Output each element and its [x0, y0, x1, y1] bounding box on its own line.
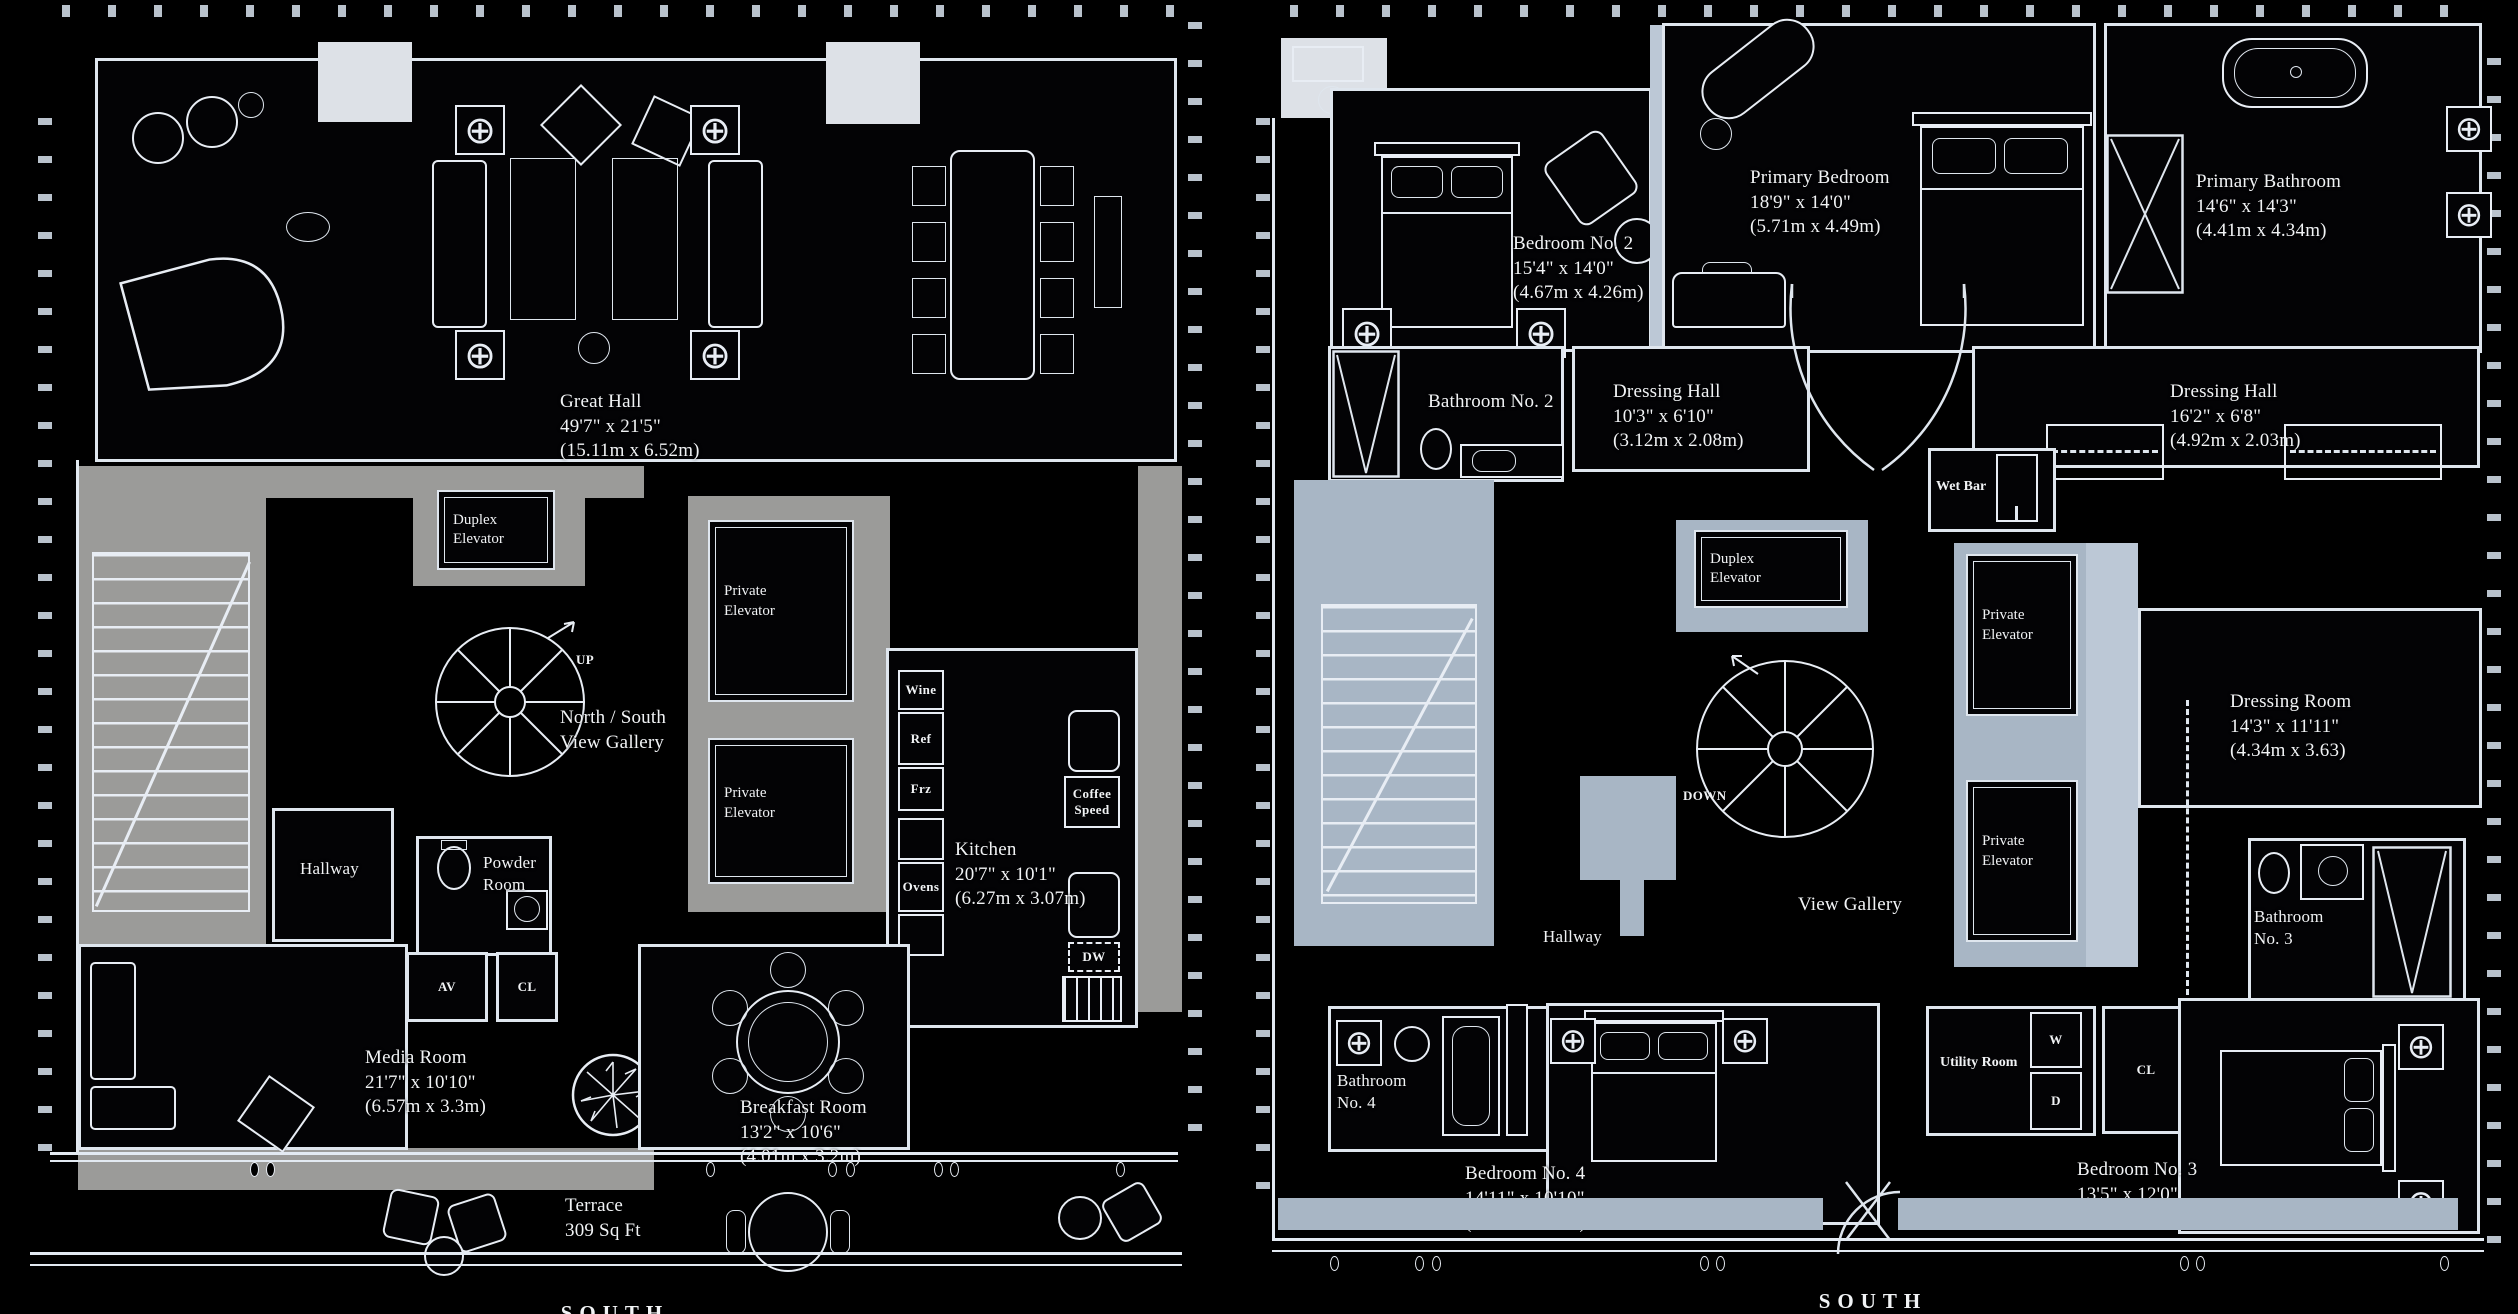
utility-room-label: Utility Room — [1940, 1054, 2017, 1072]
door-hinge-icon — [1432, 1256, 1441, 1271]
door-hinge-icon — [1716, 1256, 1725, 1271]
view-gallery-label: View Gallery — [1798, 893, 1902, 918]
door-hin​ge-icon — [2440, 1256, 2449, 1271]
shower-icon — [2106, 134, 2184, 294]
room-dim-imperial: 14'3" x 11'11" — [2230, 715, 2351, 740]
bathroom-4-label: Bathroom No. 4 — [1337, 1070, 1432, 1114]
door-hinge-icon — [2196, 1256, 2205, 1271]
sink-icon: ⊕ — [2446, 106, 2492, 152]
pillow-icon — [1391, 166, 1443, 198]
bed-headboard-icon — [1912, 112, 2092, 126]
pillow-icon — [1451, 166, 1503, 198]
dressing-hall-small-label: Dressing Hall 10'3" x 6'10" (3.12m x 2.0… — [1613, 380, 1744, 454]
room-dim-metric: (3.12m x 2.08m) — [1613, 429, 1744, 454]
south-wall-inner — [1272, 1250, 2484, 1252]
door-hinge-icon — [1330, 1256, 1339, 1271]
room-name: Primary Bedroom — [1750, 166, 1890, 191]
bench-handle-icon — [1702, 262, 1752, 274]
nightstand-icon: ⊕ — [1550, 1018, 1596, 1064]
poche-south-band — [1278, 1198, 1823, 1230]
poche-light-strip — [2086, 543, 2138, 967]
hallway-label: Hallway — [1543, 926, 1602, 948]
primary-bathroom-label: Primary Bathroom 14'6" x 14'3" (4.41m x … — [2196, 170, 2341, 244]
washer-box: W — [2030, 1012, 2082, 1068]
poche-hall — [1580, 776, 1676, 880]
primary-bedroom-label: Primary Bedroom 18'9" x 14'0" (5.71m x 4… — [1750, 166, 1890, 240]
desk-icon — [1292, 46, 1364, 82]
room-dim-imperial: 10'3" x 6'10" — [1613, 405, 1744, 430]
sink-bowl-icon — [2318, 856, 2348, 886]
dryer-box: D — [2030, 1072, 2082, 1130]
window-ticks-right — [2487, 58, 2501, 1270]
compass-south-right: SOUTH — [1778, 1288, 1968, 1314]
bedroom-2-label: Bedroom No. 2 15'4" x 14'0" (4.67m x 4.2… — [1513, 232, 1644, 306]
closet-room: CL — [2102, 1006, 2190, 1134]
sink-bowl-icon — [1394, 1026, 1430, 1062]
toilet-icon — [2258, 852, 2290, 894]
wardrobe-rail-icon — [2052, 450, 2158, 453]
drain-icon — [2290, 66, 2302, 78]
room-dim-imperial: 14'6" x 14'3" — [2196, 195, 2341, 220]
private-elevator-label: Private Elevator — [1982, 606, 2048, 645]
double-door-icon — [1772, 262, 1984, 474]
room-name: Bathroom No. 4 — [1337, 1070, 1432, 1114]
door-hinge-icon — [2180, 1256, 2189, 1271]
room-dim-metric: (5.71m x 4.49m) — [1750, 215, 1890, 240]
duplex-elevator-label: Duplex Elevator — [1710, 550, 1780, 589]
bathroom-3-label: Bathroom No. 3 — [2254, 906, 2349, 950]
door-hinge-icon — [1415, 1256, 1424, 1271]
pillow-icon — [1658, 1032, 1708, 1060]
closet-label: CL — [2137, 1062, 2156, 1078]
door-slab-icon — [1506, 1004, 1528, 1136]
room-dim-metric: (4.92m x 2.03m) — [2170, 429, 2301, 454]
room-dim-imperial: 18'9" x 14'0" — [1750, 191, 1890, 216]
closet-dash-line — [2186, 700, 2189, 995]
bed-headboard-icon — [1584, 1010, 1724, 1022]
room-dim-imperial: 16'2" x 6'8" — [2170, 405, 2301, 430]
room-name: Bedroom No. 2 — [1513, 232, 1644, 257]
sink-icon: ⊕ — [1336, 1020, 1382, 1066]
shower-icon — [2372, 846, 2452, 998]
west-wall — [1272, 118, 1275, 1238]
upper-level-plan: ⊕ ⊕ Bedroom No. 2 15'4" x 14'0" (4.67m x… — [0, 0, 2518, 1314]
pillow-icon — [2004, 138, 2068, 174]
tub-inner-icon — [1452, 1026, 1490, 1126]
bench-icon — [1672, 272, 1786, 328]
washer-label: W — [2049, 1032, 2062, 1048]
floor-plan-canvas: ⊕ ⊕ ⊕ ⊕ Great Hall 49'7" x 21'5" (15.11m… — [0, 0, 2518, 1314]
bed-linen-line — [1383, 212, 1511, 214]
room-name: Dressing Hall — [2170, 380, 2301, 405]
sink-bowl-icon — [1472, 450, 1516, 472]
bathroom-2-label: Bathroom No. 2 — [1428, 390, 1554, 415]
room-name: Primary Bathroom — [2196, 170, 2341, 195]
sink-icon: ⊕ — [2446, 192, 2492, 238]
room-dim-metric: (4.34m x 3.63) — [2230, 739, 2351, 764]
dryer-label: D — [2051, 1093, 2061, 1109]
bed-linen-line — [1593, 1072, 1715, 1074]
room-dim-imperial: 15'4" x 14'0" — [1513, 257, 1644, 282]
window-ticks-top — [1290, 5, 2480, 17]
side-table-icon — [1700, 118, 1732, 150]
nightstand-icon: ⊕ — [2398, 1024, 2444, 1070]
room-dim-metric: (4.67m x 4.26m) — [1513, 281, 1644, 306]
room-name: Bathroom No. 3 — [2254, 906, 2349, 950]
wardrobe-rail-icon — [2290, 450, 2436, 453]
bed-headboard-icon — [1374, 142, 1520, 156]
room-name: Bedroom No. 3 — [2077, 1158, 2208, 1183]
private-elevator: Private Elevator — [1966, 554, 2078, 716]
nightstand-icon: ⊕ — [1722, 1018, 1768, 1064]
pillow-icon — [2344, 1108, 2374, 1152]
wet-bar-label: Wet Bar — [1936, 478, 1986, 496]
bar-faucet-icon — [2015, 506, 2018, 520]
down-label: DOWN — [1683, 788, 1727, 804]
toilet-icon — [1420, 428, 1452, 470]
door-hinge-icon — [1700, 1256, 1709, 1271]
dressing-hall-large-label: Dressing Hall 16'2" x 6'8" (4.92m x 2.03… — [2170, 380, 2301, 454]
room-name: Dressing Room — [2230, 690, 2351, 715]
room-name: Dressing Hall — [1613, 380, 1744, 405]
private-elevator: Private Elevator — [1966, 780, 2078, 942]
shower-icon — [1332, 350, 1400, 478]
south-wall — [1272, 1238, 2484, 1241]
window-ticks-left — [1256, 118, 1270, 1200]
pillow-icon — [2344, 1058, 2374, 1102]
room-name: Bedroom No. 4 — [1465, 1162, 1586, 1187]
party-wall — [1650, 25, 1662, 352]
pillow-icon — [1932, 138, 1996, 174]
pillow-icon — [1600, 1032, 1650, 1060]
room-dim-metric: (4.41m x 4.34m) — [2196, 219, 2341, 244]
poche-south-band — [1898, 1198, 2458, 1230]
bed-linen-line — [1922, 188, 2082, 190]
poche-hall-neck — [1620, 878, 1644, 936]
dressing-room-label: Dressing Room 14'3" x 11'11" (4.34m x 3.… — [2230, 690, 2351, 764]
private-elevator-label: Private Elevator — [1982, 832, 2048, 871]
spiral-stair-icon — [1688, 652, 1883, 847]
duplex-elevator: Duplex Elevator — [1694, 530, 1848, 608]
bed-headboard-icon — [2382, 1044, 2396, 1172]
